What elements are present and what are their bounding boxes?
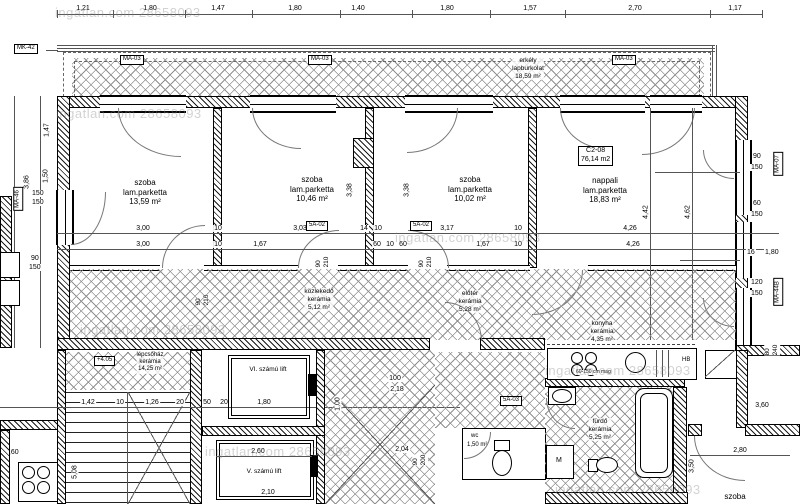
dim-line [57,233,779,234]
dim-label: 10 [213,241,223,248]
dim-tick [710,10,711,18]
dim-label: 150 [28,264,42,271]
dim-label: 150 [31,190,45,197]
dim-tick [762,10,763,18]
toilet [596,457,618,473]
washing-machine-label: M [555,457,563,464]
dim-tick [252,10,253,18]
marker-door: 5A-02 [306,221,328,231]
room-label-erkely: erkélylapburkolat18,59 m² [512,57,544,80]
marker-window: MA-46 [13,187,23,211]
dim-label: 14 [359,225,369,232]
hb-label: HB [681,357,691,363]
hallway-floor [70,269,736,340]
dim-tick [57,10,58,18]
wall-lift-divider [202,426,325,436]
wall-flue [353,138,374,168]
counter-note: 60-150 cm mag [575,370,612,375]
stove-burner [22,481,35,494]
balcony-outline-dashed [74,61,700,97]
dim-label: 3,38 [347,182,354,198]
room-label-nappali: nappalilam.parketta18,83 m² [583,176,627,205]
wall-east-lower [736,350,748,428]
duct-diagonal [705,350,735,377]
dim-tick [113,10,114,18]
stove-burner [37,466,50,479]
dim-line [680,260,740,261]
lift6-label: VI. számú lift [249,366,286,374]
landing-floor [435,352,545,428]
dim-label: 100 [388,375,402,382]
dim-label: 1,21 [75,5,91,12]
dim-label: 3,60 [754,402,770,409]
dim-label: 4,62 [685,204,692,220]
counter-dashed-line [547,344,695,345]
dim-label: 3,00 [135,225,151,232]
lift-car-6 [228,355,310,419]
dim-label: 10 [373,225,383,232]
wall-partition [528,108,537,268]
dim-label: 1,40 [350,5,366,12]
dim-label: 4,42 [643,204,650,220]
balcony-railing-end [712,45,713,96]
dim-label: 1,26 [144,399,160,406]
dim-label: 1,67 [252,241,268,248]
dim-tick [565,10,566,18]
balcony-railing-end [716,45,717,96]
stair-landing [66,352,190,390]
marker-window: MA-03 [308,55,332,65]
dim-label: 3,17 [439,225,455,232]
dim-label: 90 [752,153,762,160]
door-size-label: 90200 [412,455,428,466]
lift-door [308,374,316,396]
dim-label: 1,47 [44,122,51,138]
window [735,140,752,215]
dim-label: 60 [372,241,382,248]
dim-line [40,96,41,348]
kitchen-sink [625,352,646,373]
dim-label: 3,38 [404,182,411,198]
marker-door: 5A-02 [410,221,432,231]
marker-window: MA-07 [773,152,783,176]
dim-label: 60 [752,200,762,207]
dim-label: 1,80 [764,249,780,256]
room-label-kozlekedo: közlekedőkerámia5,12 m² [304,288,333,311]
kitchen-counter [547,348,697,380]
dim-line [57,14,762,15]
wall-stair-east [190,350,202,504]
wall-south [480,338,545,350]
wall-dk-north [745,424,800,436]
wall-south [57,338,430,350]
dim-label: 10 [513,225,523,232]
dim-line [655,172,740,173]
dim-label: 1,47 [210,5,226,12]
marker-window: MA-44B [773,278,783,306]
dim-label: 1,67 [475,241,491,248]
dim-label: 150 [750,290,764,297]
door-size-label: 90210 [315,257,331,268]
dim-label: 60 [398,241,408,248]
dim-label: 10 [115,399,125,406]
dim-label: 1,42 [80,399,96,406]
lift5-label: V. számú lift [247,468,282,476]
dim-label: 1,80 [439,5,455,12]
balcony-railing [57,45,715,46]
door-size-label: 90210 [418,257,434,268]
stove-burner [585,352,597,364]
door-swing-arc [560,108,606,149]
room-label-szoba3: szobalam.parketta10,02 m² [448,175,492,204]
room-label-furdo: fürdőkerámia5,25 m² [588,418,611,441]
dim-label: 50 [202,399,212,406]
dim-label-pair: 80240 [764,345,780,356]
toilet [492,450,512,476]
dim-label: 10 [385,241,395,248]
room-label-szoba-dk: szoba [724,492,745,502]
dim-label: 3,50 [689,458,696,474]
dim-label: 20 [175,399,185,406]
dim-label: 1,17 [727,5,743,12]
shaft-brace [325,385,435,504]
dim-label: 120 [750,279,764,286]
dim-tick [412,10,413,18]
dim-label: 3,86 [24,174,31,190]
wall-neighbour [0,420,58,430]
stove-burner [571,352,583,364]
appliance-line [668,350,669,377]
lift-door [310,455,318,477]
door-swing-arc [694,436,745,481]
dim-label: 4,26 [622,225,638,232]
marker-door: 5A-03 [500,396,522,406]
dim-label: 1,80 [287,5,303,12]
wall-bathroom-east [673,387,687,504]
dim-label: 90 [30,255,40,262]
balcony-railing [57,48,715,49]
room-label-konyha: konyhakerámia4,35 m² [590,320,613,343]
door-swing-arc [407,108,458,153]
dim-tick [185,10,186,18]
appliance-line [662,350,663,377]
dim-label: 1,80 [142,5,158,12]
dim-label: 150 [31,199,45,206]
dim-label: 2,04 [394,446,410,453]
dim-line [14,96,15,348]
stair-direction-line [128,392,190,504]
dim-label: 150 [750,211,764,218]
door-swing-arc [71,192,106,245]
wall-neighbour [0,430,10,504]
elevation-marker: +4.05 [94,356,115,366]
dim-label: 2,18 [389,386,405,393]
wall-stair-west [57,350,66,504]
dim-label: 2,60 [250,448,266,455]
marker-window: MA-03 [120,55,144,65]
dim-label: 2,80 [732,447,748,454]
door-swing-arc [252,108,301,149]
dim-line [57,249,779,250]
dim-label: 16 [746,249,756,256]
dim-tick [490,10,491,18]
wall-dk-north [688,424,702,436]
door-swing-arc [162,225,205,268]
dim-line [690,455,790,456]
dim-label: 10 [513,241,523,248]
dim-tick [340,10,341,18]
neighbour-window [0,252,20,278]
wall-bathroom-south [545,492,688,504]
dim-label: 150 [750,164,764,171]
room-label-szoba2: szobalam.parketta10,46 m² [290,175,334,204]
dim-label: 1,50 [43,168,50,184]
appliance-line [656,350,657,377]
dim-label: 10 [213,225,223,232]
window-swing-arc [703,150,734,179]
dim-line [216,456,312,457]
dim-label: 2,10 [260,489,276,496]
dim-label: 4,26 [625,241,641,248]
unit-label: C2-0876,14 m2 [578,146,613,166]
door-swing-arc [118,108,181,157]
room-label-lepcsohaz: lépcsőházkerámia14,25 m² [136,352,163,374]
dim-label: 3,00 [135,241,151,248]
neighbour-window [0,280,20,306]
stove-burner [22,466,35,479]
room-label-szoba1: szobalam.parketta13,59 m² [123,178,167,207]
dim-label: 1,00 [335,396,342,412]
bathtub [635,388,673,478]
dim-label: 5,08 [72,464,79,480]
marker-mk42: MK-42 [14,44,38,54]
stove-burner [37,481,50,494]
dim-label: 2,70 [627,5,643,12]
marker-window: MA-03 [612,55,636,65]
dim-label: 1,57 [522,5,538,12]
floor-plan-canvas: 1,21 1,80 1,47 1,80 1,40 1,80 1,57 2,70 … [0,0,800,504]
